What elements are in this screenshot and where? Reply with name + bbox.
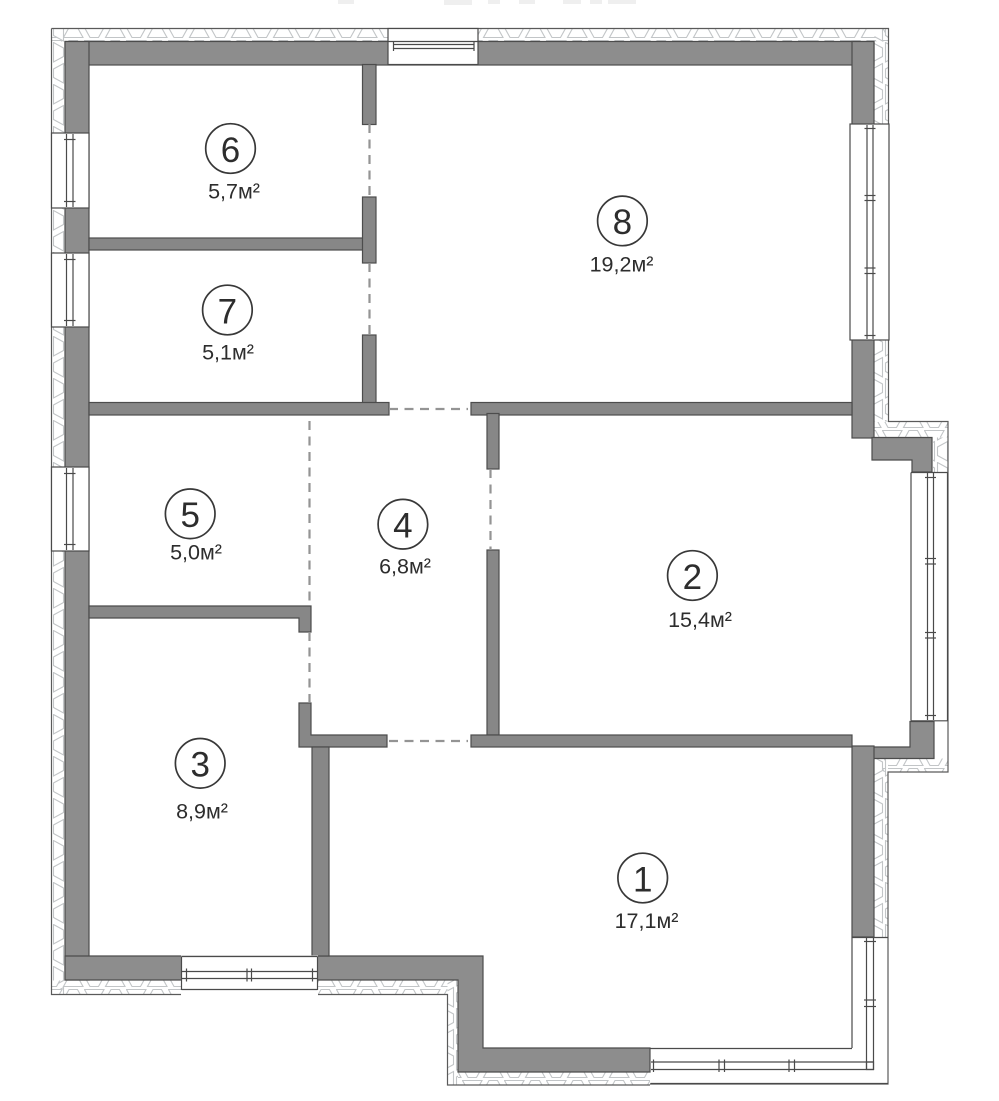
svg-text:17,1м²: 17,1м²	[615, 909, 679, 933]
svg-text:8,9м²: 8,9м²	[176, 800, 228, 824]
svg-text:2: 2	[683, 558, 702, 597]
svg-text:6: 6	[221, 131, 240, 170]
svg-text:5,0м²: 5,0м²	[170, 541, 222, 565]
svg-text:15,4м²: 15,4м²	[668, 608, 732, 632]
svg-text:5: 5	[180, 496, 199, 535]
svg-text:5,1м²: 5,1м²	[202, 340, 254, 364]
svg-text:3: 3	[190, 746, 209, 785]
svg-text:7: 7	[218, 292, 237, 331]
svg-text:4: 4	[393, 507, 412, 546]
svg-text:8: 8	[613, 203, 632, 242]
svg-text:19,2м²: 19,2м²	[590, 253, 654, 277]
svg-text:1: 1	[633, 860, 652, 899]
svg-text:5,7м²: 5,7м²	[208, 179, 260, 203]
svg-text:6,8м²: 6,8м²	[379, 555, 431, 579]
